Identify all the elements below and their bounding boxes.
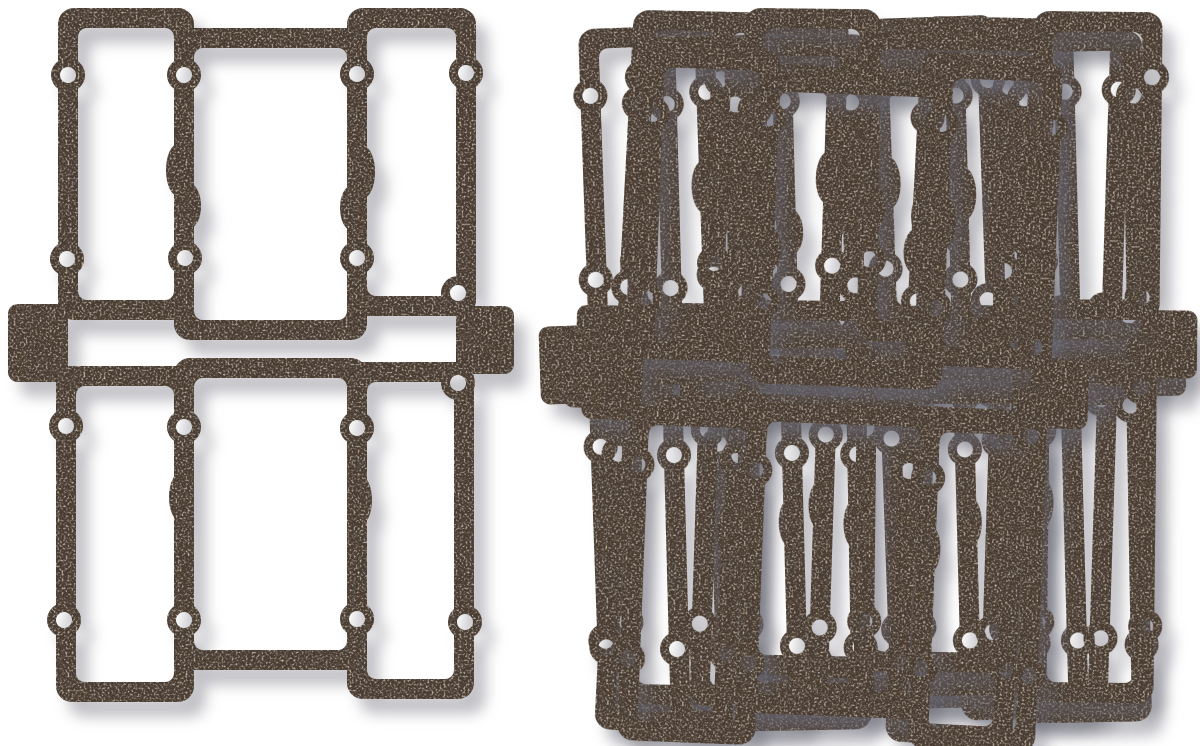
- gasket-product-photo: A set of dark brown die-cut motorcycle v…: [0, 0, 1200, 746]
- gasket-photo-svg: A set of dark brown die-cut motorcycle v…: [0, 0, 1200, 746]
